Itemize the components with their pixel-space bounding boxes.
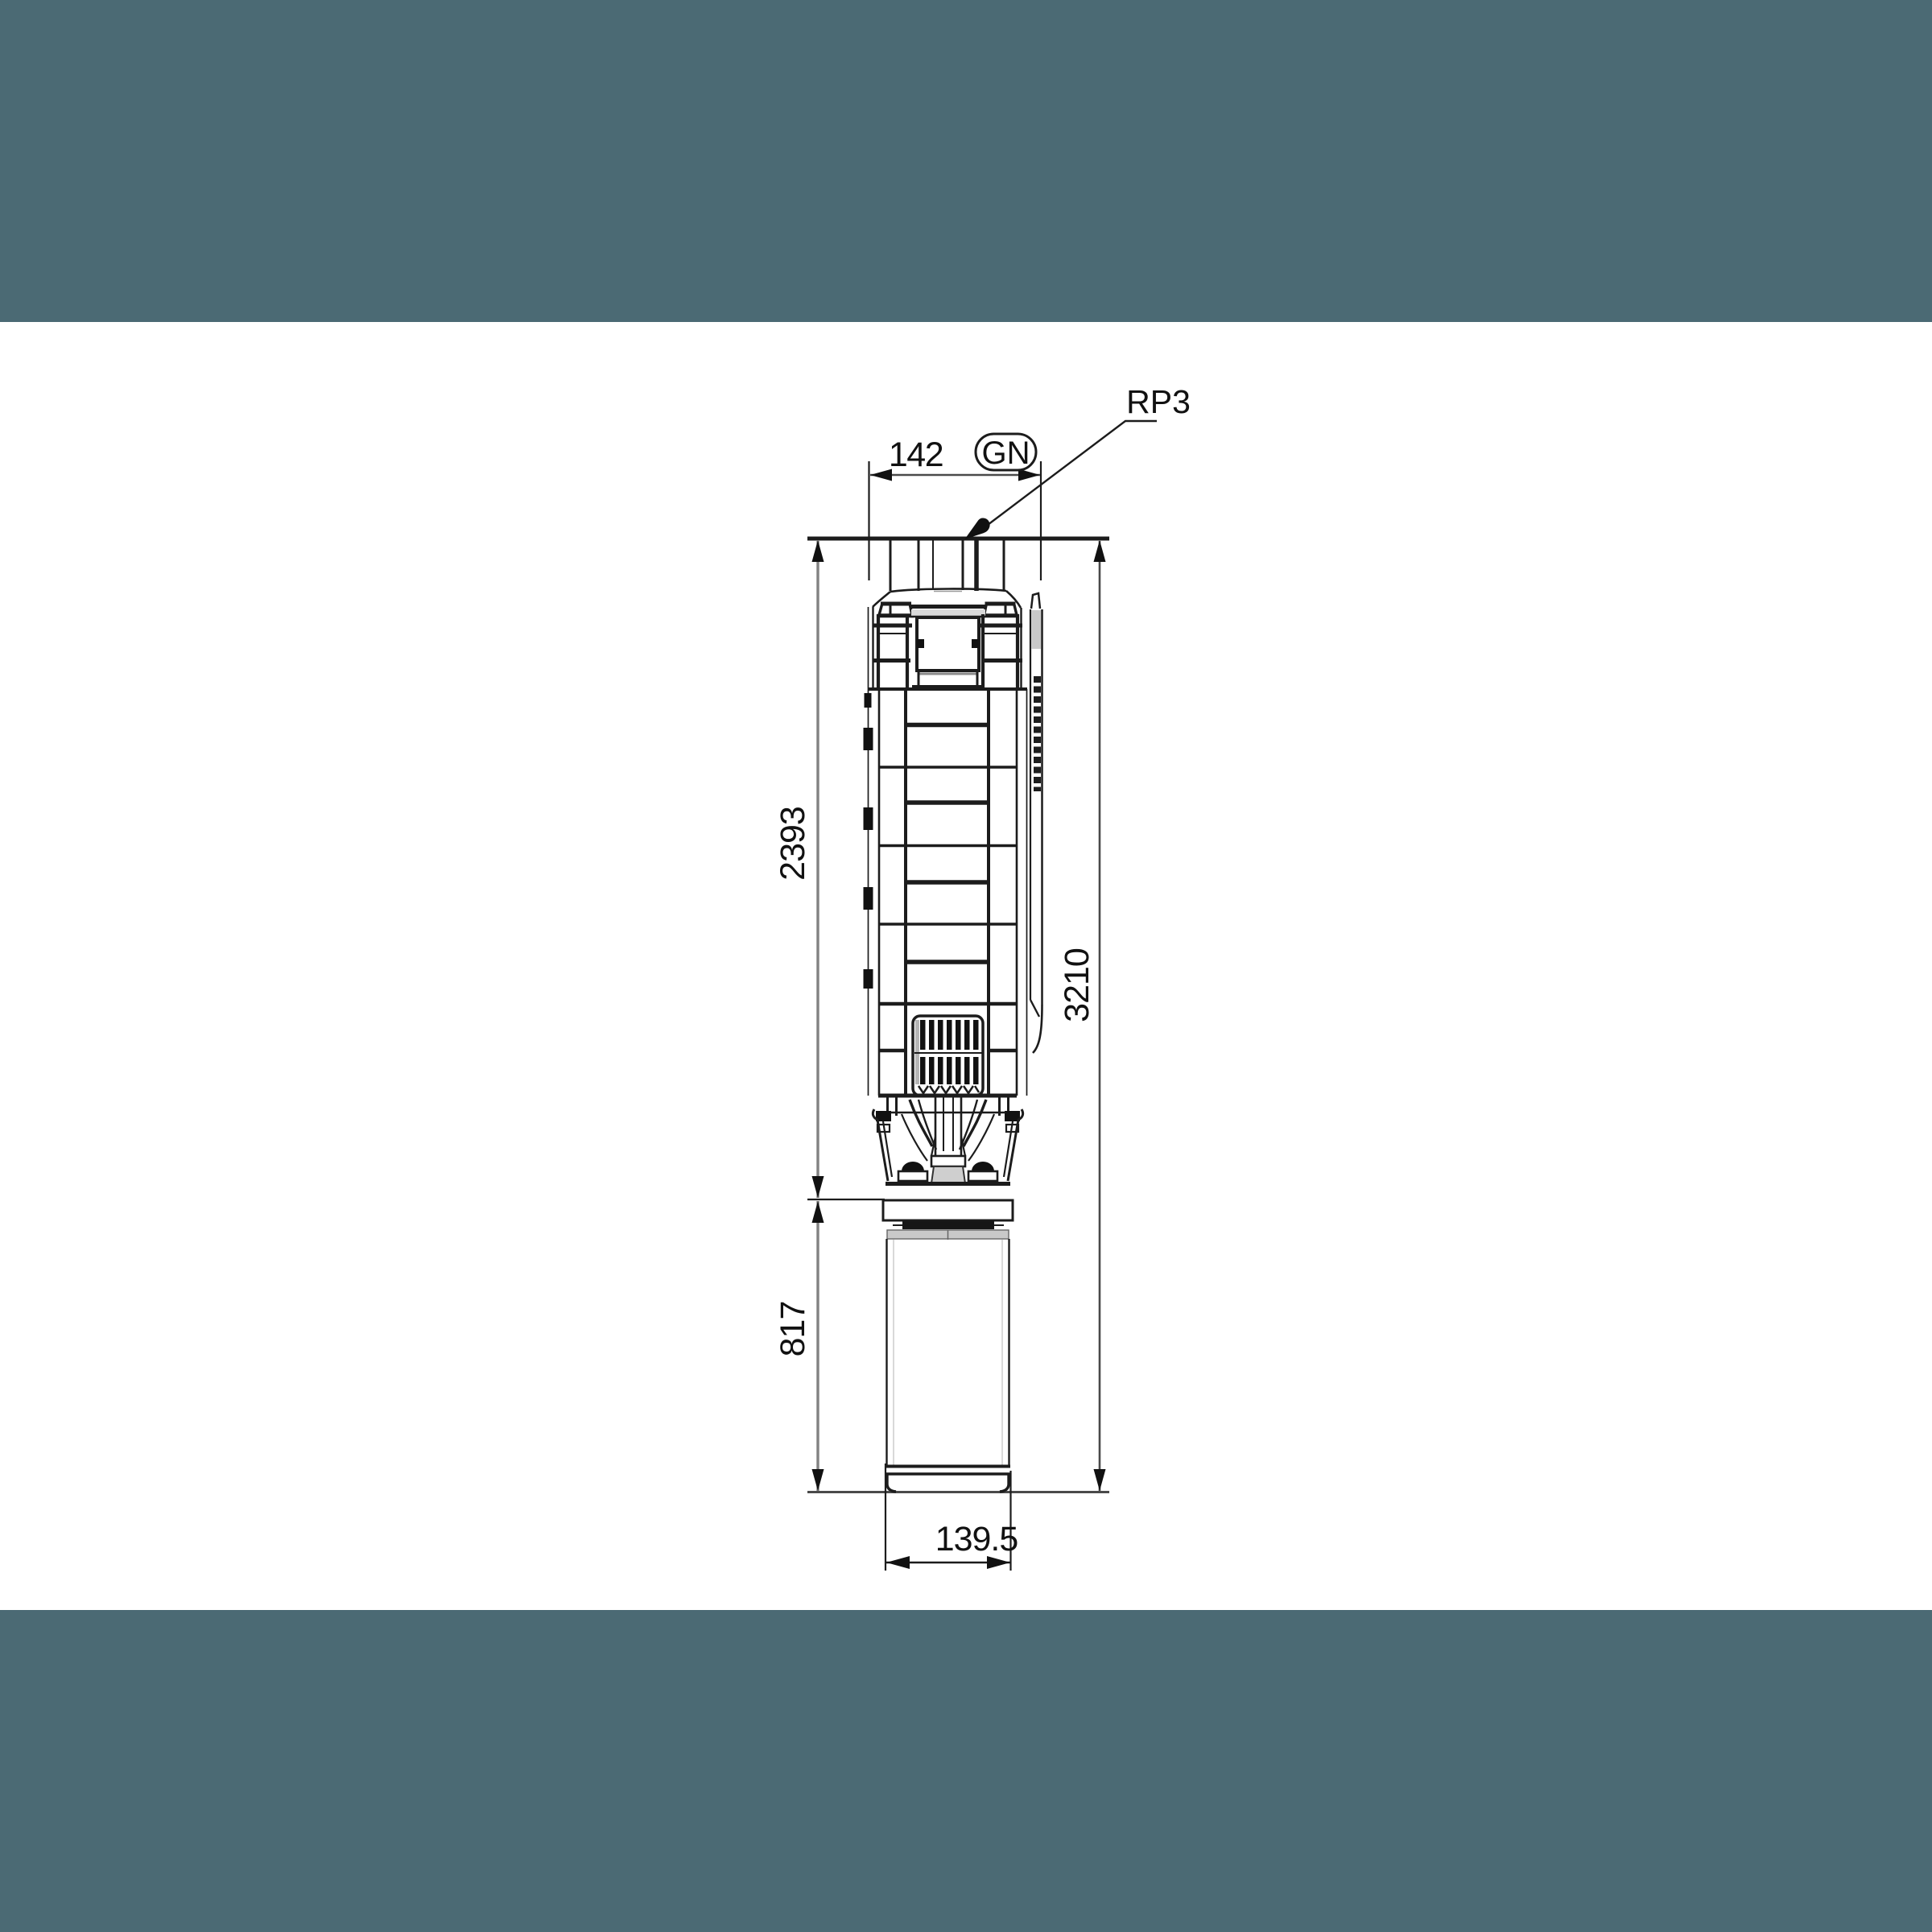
svg-text:GN: GN bbox=[982, 436, 1030, 471]
svg-text:142: 142 bbox=[889, 436, 943, 474]
svg-text:2393: 2393 bbox=[774, 807, 812, 881]
svg-text:817: 817 bbox=[774, 1302, 812, 1357]
svg-text:139.5: 139.5 bbox=[935, 1520, 1018, 1558]
svg-text:RP3: RP3 bbox=[1126, 383, 1191, 420]
svg-text:3210: 3210 bbox=[1058, 948, 1096, 1022]
